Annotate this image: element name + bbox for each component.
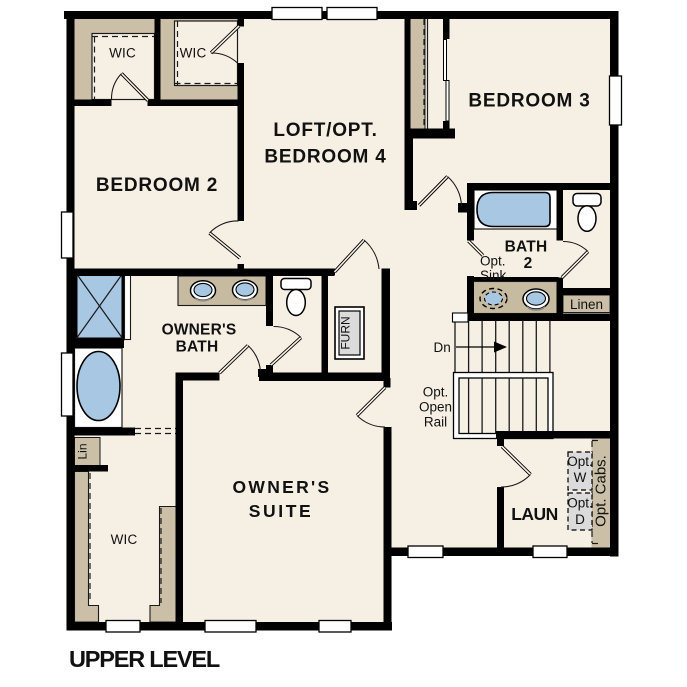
svg-text:W: W <box>574 470 587 485</box>
svg-text:Opt.: Opt. <box>480 254 506 269</box>
svg-text:Opt.: Opt. <box>423 385 449 400</box>
svg-text:WIC: WIC <box>111 532 138 547</box>
svg-text:BEDROOM 3: BEDROOM 3 <box>468 91 590 112</box>
svg-text:2: 2 <box>524 255 533 272</box>
svg-text:Opt.: Opt. <box>567 454 593 469</box>
svg-text:FURN: FURN <box>339 316 353 349</box>
svg-text:SUITE: SUITE <box>249 501 314 521</box>
svg-text:Rail: Rail <box>424 415 447 430</box>
svg-text:OWNER'S: OWNER'S <box>232 477 331 497</box>
svg-text:UPPER LEVEL: UPPER LEVEL <box>69 646 220 672</box>
svg-text:Open: Open <box>419 400 452 415</box>
svg-text:Dn: Dn <box>434 340 451 355</box>
svg-text:Lin: Lin <box>76 443 90 459</box>
svg-text:WIC: WIC <box>180 46 207 61</box>
svg-text:BATH: BATH <box>176 339 219 356</box>
svg-text:Sink: Sink <box>480 268 507 283</box>
svg-text:Opt.: Opt. <box>567 496 593 511</box>
svg-text:BATH: BATH <box>505 239 548 256</box>
svg-text:Linen: Linen <box>570 297 603 312</box>
svg-text:D: D <box>575 512 585 527</box>
svg-text:BEDROOM 4: BEDROOM 4 <box>264 147 386 168</box>
svg-text:WIC: WIC <box>109 46 136 61</box>
svg-text:OWNER'S: OWNER'S <box>162 322 237 339</box>
svg-text:LAUN: LAUN <box>511 504 558 524</box>
svg-text:BEDROOM 2: BEDROOM 2 <box>96 175 218 196</box>
svg-text:Opt. Cabs.: Opt. Cabs. <box>593 455 610 527</box>
svg-text:LOFT/OPT.: LOFT/OPT. <box>273 120 377 141</box>
